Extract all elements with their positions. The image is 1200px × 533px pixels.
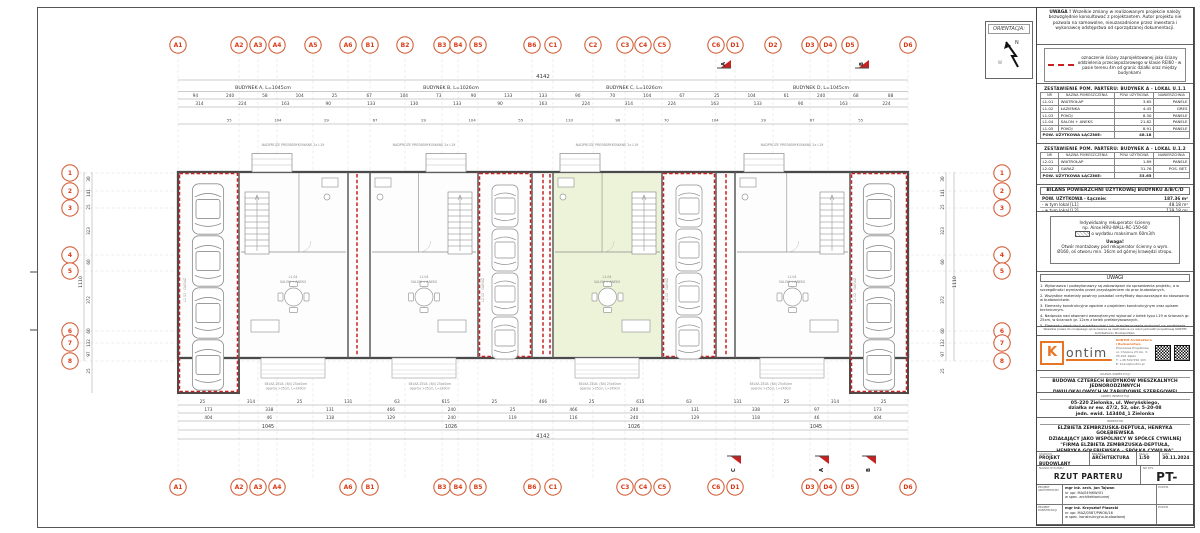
svg-text:130: 130 [410, 101, 418, 107]
fire-wall-dash-sample [1048, 64, 1074, 66]
svg-text:BELKA ŻELB. (B4) 25x40cm: BELKA ŻELB. (B4) 25x40cm [750, 381, 793, 386]
svg-text:A5: A5 [309, 42, 318, 49]
svg-text:73: 73 [436, 93, 442, 99]
svg-text:129: 129 [691, 415, 699, 421]
svg-text:1110: 1110 [78, 276, 84, 288]
svg-text:SALON + ANEKS: SALON + ANEKS [594, 280, 620, 284]
qr-code-2 [1174, 345, 1190, 361]
svg-text:466: 466 [387, 407, 395, 413]
svg-text:224: 224 [882, 101, 890, 107]
svg-text:240: 240 [448, 407, 456, 413]
svg-text:90: 90 [575, 93, 581, 99]
svg-text:25: 25 [200, 399, 206, 405]
bilans-title: BILANS POWIERZCHNI UŻYTKOWEJ BUDYNKU A/B… [1040, 187, 1190, 195]
svg-text:55: 55 [227, 118, 232, 123]
svg-text:A2: A2 [235, 484, 244, 491]
svg-text:C4: C4 [639, 484, 648, 491]
svg-text:131: 131 [326, 407, 334, 413]
firm-block: K ontim KONTIM Architektura i Budownictw… [1037, 336, 1193, 371]
svg-text:104: 104 [400, 93, 408, 99]
rekuperator-note: Indywidualny rekuperator ścienny np. Air… [1037, 212, 1193, 272]
svg-text:L2.02 · GARAŻ: L2.02 · GARAŻ [664, 277, 669, 302]
svg-text:BUDYNEK A, L=1045cm: BUDYNEK A, L=1045cm [235, 85, 291, 91]
svg-text:240: 240 [226, 93, 234, 99]
svg-text:BELKA ŻELB. (B4) 25x40cm: BELKA ŻELB. (B4) 25x40cm [409, 381, 452, 386]
svg-text:4: 4 [68, 252, 72, 259]
svg-text:30: 30 [86, 176, 91, 182]
svg-text:A3: A3 [254, 42, 263, 49]
svg-text:25: 25 [332, 93, 338, 99]
svg-text:C2: C2 [589, 42, 598, 49]
svg-text:55: 55 [858, 118, 863, 123]
svg-text:25: 25 [492, 399, 498, 405]
svg-text:314: 314 [831, 399, 839, 405]
svg-text:BELKA ŻELB. (B4) 25x40cm: BELKA ŻELB. (B4) 25x40cm [579, 381, 622, 386]
stadium-row: STADIUMPROJEKT BUDOWLANY BRANŻAARCHITEKT… [1037, 452, 1193, 466]
firm-contact: KONTIM Architektura i Budownictwo Pracow… [1114, 339, 1152, 366]
svg-text:97: 97 [940, 351, 945, 357]
svg-text:119: 119 [508, 415, 516, 421]
svg-text:A6: A6 [344, 42, 353, 49]
svg-text:58: 58 [262, 93, 268, 99]
svg-text:A1: A1 [174, 42, 183, 49]
svg-text:SALON + ANEKS: SALON + ANEKS [779, 280, 805, 284]
svg-text:8: 8 [68, 358, 72, 365]
svg-text:D3: D3 [805, 484, 814, 491]
kontim-logo-mark: K [1040, 341, 1064, 365]
svg-text:323: 323 [86, 227, 91, 235]
svg-text:B1: B1 [366, 42, 375, 49]
svg-text:SALON + ANEKS: SALON + ANEKS [280, 280, 306, 284]
svg-text:25: 25 [940, 204, 945, 210]
svg-text:C5: C5 [658, 42, 667, 49]
svg-text:615: 615 [442, 399, 450, 405]
svg-text:6: 6 [1000, 328, 1004, 335]
svg-text:133: 133 [539, 93, 547, 99]
svg-text:118: 118 [752, 415, 760, 421]
svg-text:224: 224 [668, 101, 676, 107]
svg-text:88: 88 [888, 93, 894, 99]
svg-text:A4: A4 [273, 42, 282, 49]
svg-text:25: 25 [297, 399, 303, 405]
svg-text:B3: B3 [438, 42, 447, 49]
svg-text:NADPROŻE PREFABRYKOWANE 2x L19: NADPROŻE PREFABRYKOWANE 2x L19 [393, 142, 456, 147]
svg-text:323: 323 [940, 227, 945, 235]
svg-text:D6: D6 [903, 42, 912, 49]
svg-text:372: 372 [86, 296, 91, 304]
copyright-note: Wszelkie prawa do niniejszego opracowani… [1037, 327, 1193, 336]
qr-code-1 [1155, 345, 1171, 361]
svg-text:L2.02 · GARAŻ: L2.02 · GARAŻ [852, 277, 857, 302]
svg-text:BELKA ŻELB. (B4) 25x40cm: BELKA ŻELB. (B4) 25x40cm [265, 381, 308, 386]
svg-text:63: 63 [686, 399, 692, 405]
svg-text:25: 25 [86, 204, 91, 210]
data-value: 30.11.2024 [1162, 456, 1191, 461]
uwagi-notes: UWAGI 1. Wykonawca i podwykonawcy są zob… [1037, 272, 1193, 327]
svg-text:C6: C6 [712, 42, 721, 49]
svg-text:A6: A6 [344, 484, 353, 491]
svg-text:46: 46 [814, 415, 820, 421]
svg-text:29: 29 [324, 118, 329, 123]
svg-text:4: 4 [1000, 252, 1004, 259]
svg-text:B6: B6 [528, 42, 537, 49]
svg-text:4142: 4142 [536, 434, 550, 440]
svg-text:B5: B5 [474, 42, 483, 49]
svg-text:B6: B6 [528, 484, 537, 491]
svg-text:B2: B2 [401, 42, 410, 49]
svg-text:29: 29 [761, 118, 766, 123]
north-arrow-icon: N W [988, 34, 1030, 70]
svg-text:67: 67 [810, 118, 815, 123]
inwestor-label: INWESTOR [1040, 420, 1190, 425]
svg-text:372: 372 [940, 296, 945, 304]
svg-text:D2: D2 [768, 42, 777, 49]
svg-text:N: N [1015, 40, 1019, 46]
svg-text:B5: B5 [474, 484, 483, 491]
svg-text:240: 240 [630, 415, 638, 421]
svg-text:29: 29 [421, 118, 426, 123]
svg-text:133: 133 [504, 93, 512, 99]
orientation-label: ORIENTACJA: [988, 24, 1030, 34]
svg-text:70: 70 [664, 118, 669, 123]
svg-text:67: 67 [679, 93, 685, 99]
svg-text:1026: 1026 [628, 424, 640, 430]
svg-text:1: 1 [68, 170, 72, 177]
stadium-value: PROJEKT BUDOWLANY [1039, 456, 1087, 466]
svg-text:oparcie >25cm, L=240cm: oparcie >25cm, L=240cm [266, 387, 307, 391]
svg-text:D1: D1 [730, 42, 739, 49]
svg-text:118: 118 [326, 415, 334, 421]
svg-text:25: 25 [714, 93, 720, 99]
svg-text:314: 314 [195, 101, 203, 107]
fire-wall-legend: oznaczenie ściany zaprojektowanej jako ś… [1037, 45, 1193, 84]
svg-text:L1.04: L1.04 [420, 275, 429, 279]
svg-text:67: 67 [373, 118, 378, 123]
svg-text:141: 141 [86, 189, 91, 197]
svg-text:SALON + ANEKS: SALON + ANEKS [411, 280, 437, 284]
designer-row: PROJEKT KONSTRUKCJI mgr inż. Krzysztof P… [1037, 505, 1193, 524]
svg-text:oparcie >25cm, L=240cm: oparcie >25cm, L=240cm [580, 387, 621, 391]
svg-text:4142: 4142 [536, 74, 550, 80]
svg-text:1026: 1026 [445, 424, 457, 430]
svg-text:133: 133 [754, 101, 762, 107]
svg-text:104: 104 [296, 93, 304, 99]
svg-text:25: 25 [589, 399, 595, 405]
svg-text:466: 466 [569, 407, 577, 413]
svg-text:133: 133 [367, 101, 375, 107]
svg-text:466: 466 [539, 399, 547, 405]
svg-text:A4: A4 [273, 484, 282, 491]
svg-text:D6: D6 [903, 484, 912, 491]
svg-text:90: 90 [497, 101, 503, 107]
svg-text:BUDYNEK C, L=1026cm: BUDYNEK C, L=1026cm [606, 85, 662, 91]
svg-text:60: 60 [86, 328, 91, 334]
svg-text:NADPROŻE PREFABRYKOWANE 2x L19: NADPROŻE PREFABRYKOWANE 2x L19 [262, 142, 325, 147]
designers: PROJEKT ARCHITEKTURY mgr inż. arch. Jan … [1037, 485, 1193, 525]
svg-text:8: 8 [1000, 358, 1004, 365]
svg-text:B3: B3 [438, 484, 447, 491]
bilans-table: BILANS POWIERZCHNI UŻYTKOWEJ BUDYNKU A/B… [1037, 185, 1193, 212]
svg-text:25: 25 [86, 368, 91, 374]
svg-text:L1.04: L1.04 [603, 275, 612, 279]
svg-text:25: 25 [784, 399, 790, 405]
svg-text:133: 133 [566, 118, 574, 123]
svg-text:129: 129 [387, 415, 395, 421]
svg-text:224: 224 [238, 101, 246, 107]
svg-text:25: 25 [510, 407, 516, 413]
signature-cell: PODPIS [1157, 505, 1193, 524]
svg-text:61: 61 [784, 93, 790, 99]
svg-text:404: 404 [873, 415, 881, 421]
svg-text:46: 46 [267, 415, 273, 421]
svg-text:163: 163 [839, 101, 847, 107]
svg-text:67: 67 [366, 93, 372, 99]
branza-value: ARCHITEKTURA [1092, 456, 1134, 461]
svg-text:5: 5 [1000, 268, 1004, 275]
svg-text:A3: A3 [254, 484, 263, 491]
svg-text:B: B [866, 468, 872, 472]
nazwa-label: NAZWA INWESTYCJI [1040, 373, 1190, 378]
svg-text:131: 131 [344, 399, 352, 405]
svg-text:97: 97 [814, 407, 820, 413]
svg-text:60: 60 [86, 259, 91, 265]
svg-text:615: 615 [636, 399, 644, 405]
svg-text:3: 3 [68, 205, 72, 212]
svg-text:D4: D4 [823, 42, 832, 49]
uwaga-note: UWAGA ! Wszelkie zmiany w realizowanym p… [1037, 8, 1193, 45]
drawing-number: PT-A01 [1143, 470, 1191, 485]
svg-text:104: 104 [643, 93, 651, 99]
svg-text:NADPROŻE PREFABRYKOWANE 2x L19: NADPROŻE PREFABRYKOWANE 2x L19 [576, 142, 639, 147]
svg-text:C3: C3 [621, 42, 630, 49]
svg-text:3: 3 [1000, 205, 1004, 212]
svg-text:L1.04: L1.04 [788, 275, 797, 279]
svg-text:90: 90 [798, 101, 804, 107]
svg-text:163: 163 [281, 101, 289, 107]
svg-text:1045: 1045 [810, 424, 822, 430]
svg-text:90: 90 [471, 93, 477, 99]
reku-note-text: Otwór montażowy pod rekuperator ścienny … [1055, 244, 1175, 255]
inwestor: INWESTOR ELŻBIETA ZEMBRZUSKA-DEPTUŁA, HE… [1037, 418, 1193, 452]
svg-text:90: 90 [615, 118, 620, 123]
svg-text:C1: C1 [549, 42, 558, 49]
svg-text:314: 314 [625, 101, 633, 107]
svg-text:W: W [998, 60, 1002, 65]
orientation-box: ORIENTACJA: N W [985, 21, 1033, 79]
svg-text:70: 70 [610, 93, 616, 99]
svg-text:L2.02 · GARAŻ: L2.02 · GARAŻ [480, 277, 485, 302]
svg-text:oparcie >25cm, L=240cm: oparcie >25cm, L=240cm [410, 387, 451, 391]
svg-text:C1: C1 [549, 484, 558, 491]
fire-wall-legend-text: oznaczenie ściany zaprojektowanej jako ś… [1077, 55, 1182, 75]
svg-text:1: 1 [1000, 170, 1004, 177]
uwagi-title: UWAGI [1040, 274, 1190, 282]
reku-line3: o wydatku maksimum 60m3/h [1091, 231, 1155, 236]
svg-text:NADPROŻE PREFABRYKOWANE 2x L19: NADPROŻE PREFABRYKOWANE 2x L19 [761, 142, 824, 147]
svg-text:A: A [819, 468, 825, 472]
svg-text:60: 60 [940, 328, 945, 334]
svg-text:94: 94 [193, 93, 199, 99]
title-block-column: UWAGA ! Wszelkie zmiany w realizowanym p… [1036, 7, 1194, 526]
svg-text:L1.04: L1.04 [289, 275, 298, 279]
svg-text:A: A [721, 62, 727, 66]
svg-text:132: 132 [86, 339, 91, 347]
svg-text:B4: B4 [454, 484, 463, 491]
svg-text:7: 7 [1000, 340, 1004, 347]
svg-text:D3: D3 [805, 42, 814, 49]
svg-text:173: 173 [873, 407, 881, 413]
skala-value: 1:50 [1139, 456, 1157, 461]
adres-label: ADRES INWESTYCJI [1040, 395, 1190, 400]
svg-text:141: 141 [940, 189, 945, 197]
svg-text:BUDYNEK D, L=1045cm: BUDYNEK D, L=1045cm [793, 85, 850, 91]
svg-text:404: 404 [204, 415, 212, 421]
svg-text:163: 163 [539, 101, 547, 107]
svg-text:338: 338 [752, 407, 760, 413]
svg-text:C: C [731, 468, 737, 472]
svg-text:314: 314 [247, 399, 255, 405]
svg-text:25: 25 [881, 399, 887, 405]
drawing-title-row: NAZWA RYSUNKU RZUT PARTERU NR RYS. PT-A0… [1037, 466, 1193, 485]
svg-text:BUDYNEK B, L=1026cm: BUDYNEK B, L=1026cm [423, 85, 479, 91]
svg-text:224: 224 [582, 101, 590, 107]
svg-text:L2.02 · GARAŻ: L2.02 · GARAŻ [182, 277, 187, 302]
svg-text:131: 131 [734, 399, 742, 405]
svg-text:2: 2 [1000, 188, 1004, 195]
svg-text:C6: C6 [712, 484, 721, 491]
svg-text:B4: B4 [454, 42, 463, 49]
svg-text:63: 63 [394, 399, 400, 405]
nazwa-inwestycji: NAZWA INWESTYCJI BUDOWA CZTERECH BUDYNKÓ… [1037, 371, 1193, 393]
svg-text:C5: C5 [658, 484, 667, 491]
svg-text:A2: A2 [235, 42, 244, 49]
svg-text:A1: A1 [174, 484, 183, 491]
svg-text:240: 240 [817, 93, 825, 99]
svg-text:133: 133 [453, 101, 461, 107]
svg-text:104: 104 [469, 118, 477, 123]
floor-plan-canvas: 9424058104256710473901331339070104672510… [0, 0, 1035, 533]
svg-text:6: 6 [68, 328, 72, 335]
svg-text:55: 55 [518, 118, 523, 123]
svg-text:240: 240 [448, 415, 456, 421]
svg-text:2: 2 [68, 188, 72, 195]
svg-text:240: 240 [630, 407, 638, 413]
svg-text:163: 163 [711, 101, 719, 107]
svg-text:131: 131 [691, 407, 699, 413]
svg-text:D1: D1 [730, 484, 739, 491]
kontim-wordmark: ontim [1066, 345, 1112, 362]
svg-text:7: 7 [68, 340, 72, 347]
rooms-table-lokal-2: ZESTAWIENIE POM. PARTERU: BUDYNEK A - LO… [1037, 144, 1193, 185]
svg-text:D4: D4 [823, 484, 832, 491]
svg-text:104: 104 [747, 93, 755, 99]
svg-text:173: 173 [204, 407, 212, 413]
svg-text:D5: D5 [845, 42, 854, 49]
svg-text:338: 338 [265, 407, 273, 413]
wall-symbol [1075, 231, 1090, 237]
svg-text:1045: 1045 [262, 424, 274, 430]
svg-text:5: 5 [68, 268, 72, 275]
signature-cell: PODPIS [1157, 485, 1193, 504]
svg-text:104: 104 [274, 118, 282, 123]
drawing-title: RZUT PARTERU [1039, 472, 1138, 481]
svg-text:104: 104 [711, 118, 719, 123]
svg-text:97: 97 [86, 351, 91, 357]
svg-text:60: 60 [940, 259, 945, 265]
rooms-table-lokal-1: ZESTAWIENIE POM. PARTERU: BUDYNEK A - LO… [1037, 84, 1193, 144]
svg-text:oparcie >25cm, L=240cm: oparcie >25cm, L=240cm [751, 387, 792, 391]
svg-text:D5: D5 [845, 484, 854, 491]
svg-text:132: 132 [940, 339, 945, 347]
designer-row: PROJEKT ARCHITEKTURY mgr inż. arch. Jan … [1037, 485, 1193, 505]
svg-text:B1: B1 [366, 484, 375, 491]
svg-text:C3: C3 [621, 484, 630, 491]
svg-text:90: 90 [326, 101, 332, 107]
svg-text:116: 116 [569, 415, 577, 421]
svg-text:25: 25 [940, 368, 945, 374]
svg-text:C4: C4 [639, 42, 648, 49]
svg-text:B: B [859, 62, 865, 66]
svg-text:1110: 1110 [952, 276, 958, 288]
svg-text:68: 68 [853, 93, 859, 99]
svg-text:30: 30 [940, 176, 945, 182]
adres-inwestycji: ADRES INWESTYCJI 05-220 Zielonka, ul. We… [1037, 393, 1193, 418]
